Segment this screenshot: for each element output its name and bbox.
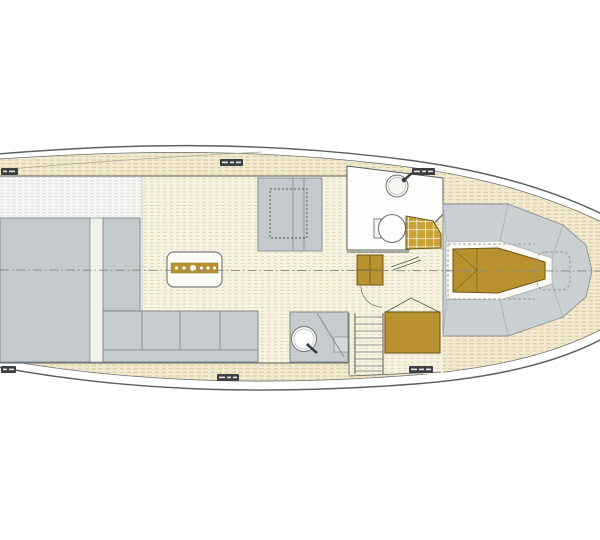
dimension-badge	[1, 168, 18, 175]
place-dot	[190, 265, 196, 271]
aft-berth-main	[0, 218, 90, 362]
dimension-badge	[220, 159, 243, 166]
saloon-table	[167, 252, 222, 287]
galley-sink-module	[290, 312, 348, 362]
dimension-badge	[412, 168, 435, 175]
dimension-badge	[1, 366, 16, 373]
aft-berth-side	[103, 218, 140, 311]
toilet-bowl	[379, 215, 406, 243]
cabinet-block	[385, 312, 440, 353]
walkway-strip	[90, 218, 103, 362]
galley-counter	[103, 311, 258, 362]
galley-tap-base	[306, 343, 309, 346]
toilet	[374, 215, 406, 243]
dinette	[258, 178, 322, 251]
place-dot	[175, 266, 178, 269]
place-dot	[182, 266, 185, 269]
place-dot	[213, 266, 216, 269]
galley	[103, 311, 258, 362]
dimension-badge	[409, 366, 433, 373]
place-dot	[200, 266, 203, 269]
dimension-badge	[217, 374, 239, 381]
deck-plan-drawing	[0, 0, 600, 540]
deck-plan-canvas	[0, 0, 600, 540]
place-dot	[206, 266, 209, 269]
